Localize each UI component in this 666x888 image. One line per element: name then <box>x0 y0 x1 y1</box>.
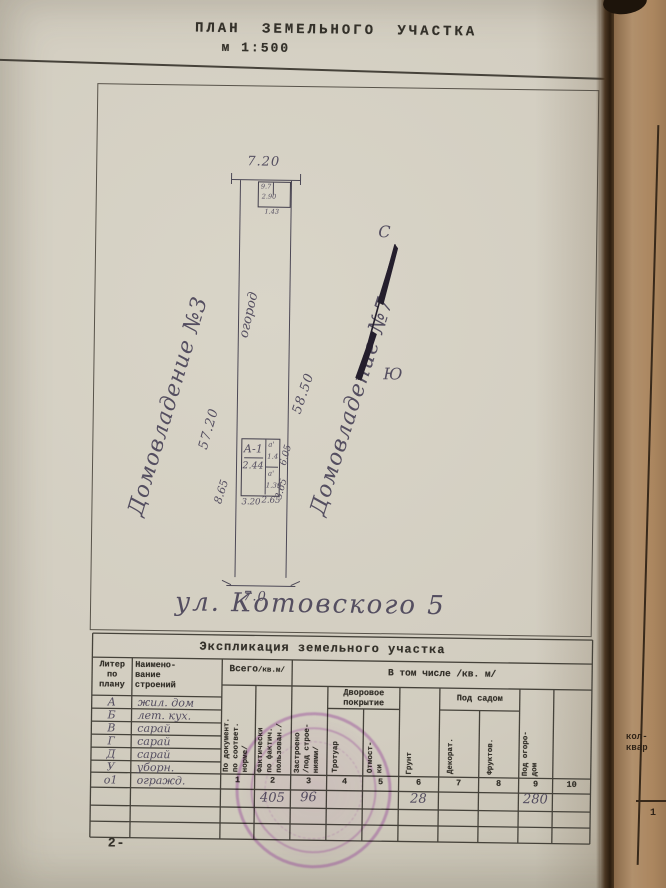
group-under-garden: Под садом <box>441 693 519 704</box>
top-structure-num1: 9.7 <box>261 182 271 190</box>
subcol-fruit: Фруктов. <box>487 713 516 775</box>
dim-house-left: 8.65 <box>211 478 231 505</box>
row-liter: о1 <box>91 774 131 787</box>
col-header-name: Наимено- вание строений <box>135 660 221 691</box>
plot-right-boundary <box>285 181 292 578</box>
row-name: лет. кух. <box>137 710 219 723</box>
annex-top-liter: а' <box>268 441 274 449</box>
adjacent-page-text-line1: кол- <box>626 732 648 743</box>
house-area: 2.44 <box>240 460 266 471</box>
col-header-liter: Литер по плану <box>92 659 132 690</box>
row-name: сарай <box>137 749 219 762</box>
dim-right-length: 58.50 <box>290 371 318 416</box>
neighbor-left-label: Домовладение №3 <box>123 293 213 518</box>
page-number: 2- <box>108 835 126 850</box>
col-header-total-word: Всего <box>229 663 258 674</box>
row-liter: Г <box>91 735 131 748</box>
document-content: ПЛАН ЗЕМЕЛЬНОГО УЧАСТКА м 1:500 7.20 9.7… <box>0 0 666 888</box>
dim-house-bottom-1: 3.20 <box>241 497 260 507</box>
row-name: уборн. <box>137 762 219 775</box>
row-liter: Д <box>91 748 131 761</box>
annex-bottom-liter: а' <box>268 470 274 478</box>
subcol-ground: Грунт <box>406 690 435 775</box>
dim-top-width: 7.20 <box>247 154 280 169</box>
value-vegetable-garden: 280 <box>518 792 552 807</box>
row-liter: У <box>91 761 131 774</box>
col-number: 6 <box>399 777 439 788</box>
top-structure-num3: 1.43 <box>265 208 280 216</box>
col-number: 9 <box>519 779 553 789</box>
col-number: 7 <box>439 778 479 789</box>
book-gutter <box>596 0 616 888</box>
adjacent-page: кол- квар 1 <box>614 0 666 888</box>
map-scale: м 1:500 <box>151 39 361 57</box>
dim-left-length: 57.20 <box>196 407 222 452</box>
top-dim-tick-left <box>231 173 232 184</box>
adjacent-page-text-line2: квар <box>626 743 648 754</box>
adjacent-page-line <box>636 800 666 802</box>
row-name: сарай <box>137 723 219 736</box>
official-stamp <box>234 711 392 869</box>
row-liter: В <box>91 722 131 735</box>
row-name: сарай <box>137 736 219 749</box>
plot-left-boundary <box>234 180 241 577</box>
bottom-dim-arrow-right <box>291 581 301 586</box>
adjacent-page-number: 1 <box>650 808 656 819</box>
house-liter: А-1 <box>241 442 265 455</box>
subcol-decorative: Декорат. <box>447 712 476 774</box>
street-address: ул. Котовского 5 <box>175 587 446 621</box>
row-name: огражд. <box>137 775 219 788</box>
col-header-total-unit: /кв.м/ <box>258 666 285 674</box>
col-number: 8 <box>479 779 519 790</box>
title-underline <box>0 59 616 81</box>
col-number: 10 <box>553 780 591 791</box>
scanned-document-photo: ПЛАН ЗЕМЕЛЬНОГО УЧАСТКА м 1:500 7.20 9.7… <box>0 0 666 888</box>
compass-south-label: Ю <box>383 364 402 383</box>
top-structure-num2: 2.90 <box>262 192 277 200</box>
annex-top-area: 1.4 <box>267 453 278 461</box>
house-annex-split <box>266 467 278 468</box>
garden-label: огород <box>237 291 262 340</box>
row-liter: А <box>92 696 132 709</box>
bottom-dimension-line <box>226 585 295 587</box>
row-liter: Б <box>91 709 131 722</box>
page-title: ПЛАН ЗЕМЕЛЬНОГО УЧАСТКА <box>151 20 521 41</box>
value-ground: 28 <box>398 791 438 807</box>
plan-frame: 7.20 9.7 2.90 1.43 огород 57.20 8.65 58.… <box>90 83 600 637</box>
subcol-vegetable-garden: Под огоро- дом <box>522 691 553 776</box>
row-name: жил. дом <box>138 697 220 710</box>
col-header-total: Всего/кв.м/ <box>222 663 292 675</box>
top-dim-tick-right <box>300 174 301 185</box>
adjacent-page-text: кол- квар <box>626 732 648 754</box>
dim-house-bottom-2: 2.65 <box>261 496 280 506</box>
group-yard-surface: Дворовое покрытие <box>329 687 399 708</box>
